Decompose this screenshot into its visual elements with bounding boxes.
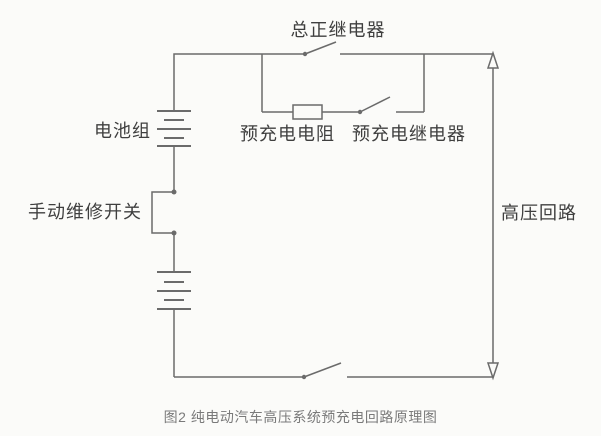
figure-canvas: 总正继电器 电池组 预充电电阻 预充电继电器 手动维修开关 高压回路 图2 纯电… xyxy=(0,0,601,436)
precharge-relay-pivot-dot xyxy=(358,110,362,114)
precharge-resistor-body xyxy=(293,105,322,119)
bottom-switch-pivot-dot xyxy=(302,375,306,379)
precharge-relay-switch-blade xyxy=(360,97,390,112)
main-relay-switch-blade xyxy=(305,42,336,54)
battery-lower-symbol xyxy=(157,272,191,309)
msd-connector-bracket xyxy=(152,192,174,233)
label-battery-pack: 电池组 xyxy=(94,121,151,141)
bottom-switch-blade xyxy=(304,363,341,377)
main-relay-pivot-dot xyxy=(303,52,307,56)
hv-loop-arrowhead-down xyxy=(488,363,498,378)
hv-loop-arrowhead-up xyxy=(488,53,498,68)
label-manual-service-switch: 手动维修开关 xyxy=(28,202,142,222)
label-precharge-resistor: 预充电电阻 xyxy=(240,124,335,144)
label-main-positive-relay: 总正继电器 xyxy=(278,20,398,40)
figure-caption: 图2 纯电动汽车高压系统预充电回路原理图 xyxy=(0,408,601,426)
wire-top-left-segment xyxy=(174,54,305,111)
label-high-voltage-loop: 高压回路 xyxy=(501,203,577,223)
label-precharge-relay: 预充电继电器 xyxy=(352,124,466,144)
battery-upper-symbol xyxy=(157,111,191,146)
